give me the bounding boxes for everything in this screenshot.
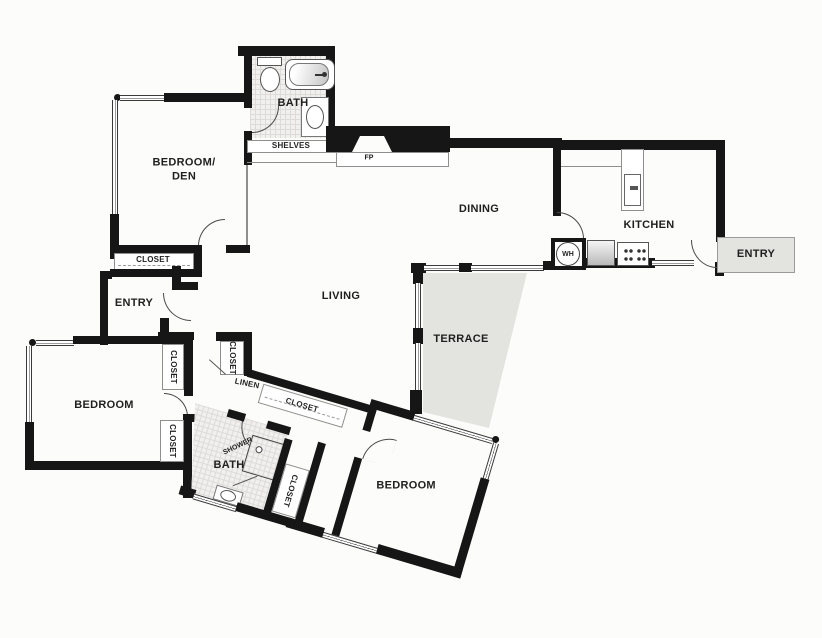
wall	[238, 46, 334, 56]
window	[471, 265, 544, 271]
den-divider-line	[246, 165, 248, 245]
room-label-bedroom-right: BEDROOM	[376, 480, 436, 494]
wall	[369, 399, 416, 421]
water-heater-label: WH	[562, 251, 574, 258]
wall	[452, 477, 490, 577]
room-label-kitchen: KITCHEN	[624, 219, 675, 233]
wall	[110, 269, 202, 277]
room-label-bath-lower: BATH	[214, 459, 245, 473]
closet-bl-lower-label: CLOSET	[167, 424, 177, 458]
closet-den-label: CLOSET	[136, 255, 170, 265]
wall	[413, 268, 423, 284]
window	[120, 95, 165, 101]
window	[415, 343, 421, 391]
room-label-dining: DINING	[459, 203, 499, 217]
wall	[448, 138, 562, 148]
wall	[194, 245, 202, 277]
wall	[330, 457, 362, 542]
counter-edge	[561, 166, 622, 167]
window	[36, 340, 74, 346]
wall	[286, 517, 325, 537]
room-label-bedroom-den: BEDROOM/ DEN	[153, 156, 216, 184]
floor-plan: BATH SHELVES BEDROOM/ DEN CLOSET ENTRY F…	[0, 0, 822, 638]
window	[482, 442, 499, 480]
wall	[73, 336, 186, 344]
door-arc-den	[198, 219, 225, 246]
tub-faucet-spout	[315, 74, 323, 76]
door-arc-bedroom-right	[362, 432, 397, 467]
room-label-terrace: TERRACE	[433, 333, 488, 347]
closet-bl-upper-label: CLOSET	[168, 350, 178, 384]
wall	[226, 245, 250, 253]
wall	[716, 140, 725, 242]
toilet-tank-icon	[257, 57, 282, 66]
room-label-bedroom-left: BEDROOM	[74, 399, 134, 413]
door-arc-entry-outer	[691, 240, 717, 268]
window	[112, 100, 118, 216]
window	[652, 260, 694, 266]
refrigerator-icon	[587, 240, 615, 266]
corner-post	[29, 339, 36, 346]
wall	[172, 282, 198, 290]
fireplace-label: FP	[365, 155, 374, 164]
wall	[110, 245, 200, 253]
room-label-entry-outer: ENTRY	[737, 248, 775, 262]
kitchen-faucet-icon	[630, 186, 638, 190]
terrace-area	[410, 264, 535, 432]
window	[415, 283, 421, 329]
wall	[553, 146, 561, 216]
wall	[164, 93, 250, 102]
room-label-entry-inner: ENTRY	[115, 297, 153, 311]
kitchen-sink-icon	[624, 174, 641, 206]
bedroom-den-line1: BEDROOM/	[153, 156, 216, 170]
door-arc-entry-hall	[163, 293, 191, 321]
wall	[413, 328, 423, 344]
window	[26, 346, 32, 424]
wall	[100, 271, 108, 345]
bedroom-den-line2: DEN	[153, 170, 216, 184]
room-label-living: LIVING	[322, 290, 360, 304]
fireplace-hearth	[336, 152, 449, 167]
wall	[376, 544, 463, 579]
water-heater-icon: WH	[556, 242, 580, 266]
window	[424, 265, 460, 271]
stove-icon	[617, 242, 649, 266]
room-label-bath-top: BATH	[278, 97, 309, 111]
toilet-icon	[260, 67, 280, 92]
shelf-front-line	[247, 162, 336, 163]
shelves-label: SHELVES	[272, 141, 310, 151]
window	[320, 531, 377, 553]
sink-icon	[306, 105, 324, 129]
closet-hall-label: CLOSET	[227, 341, 237, 375]
door-arc-kitchen	[557, 212, 584, 239]
